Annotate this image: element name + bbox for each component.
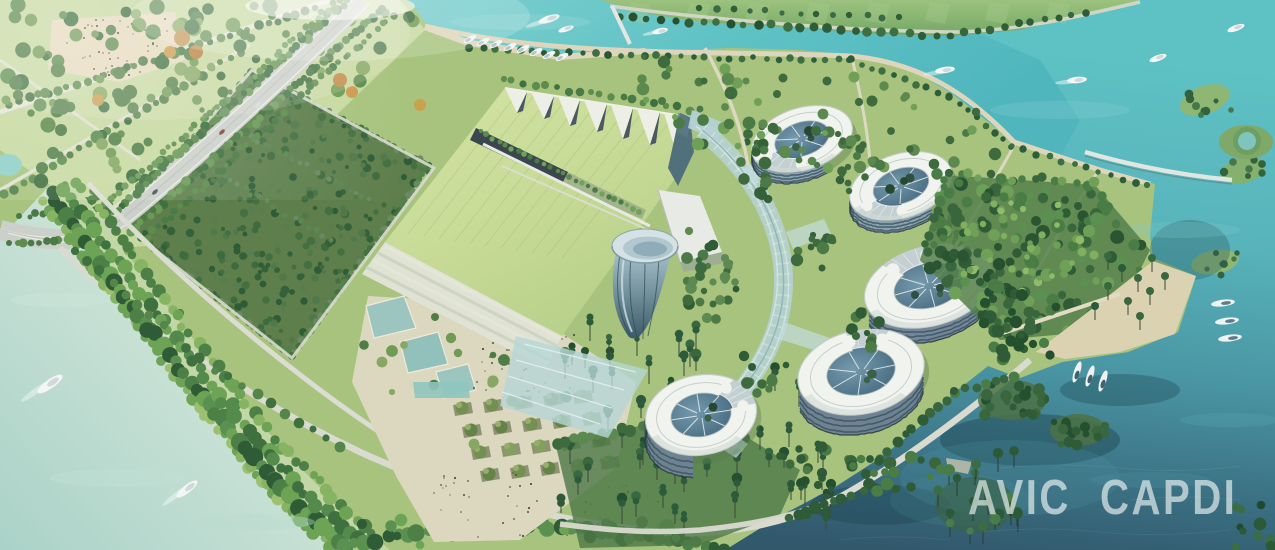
svg-text:AVIC: AVIC [968, 470, 1071, 525]
svg-text:CAPDI: CAPDI [1100, 470, 1237, 525]
